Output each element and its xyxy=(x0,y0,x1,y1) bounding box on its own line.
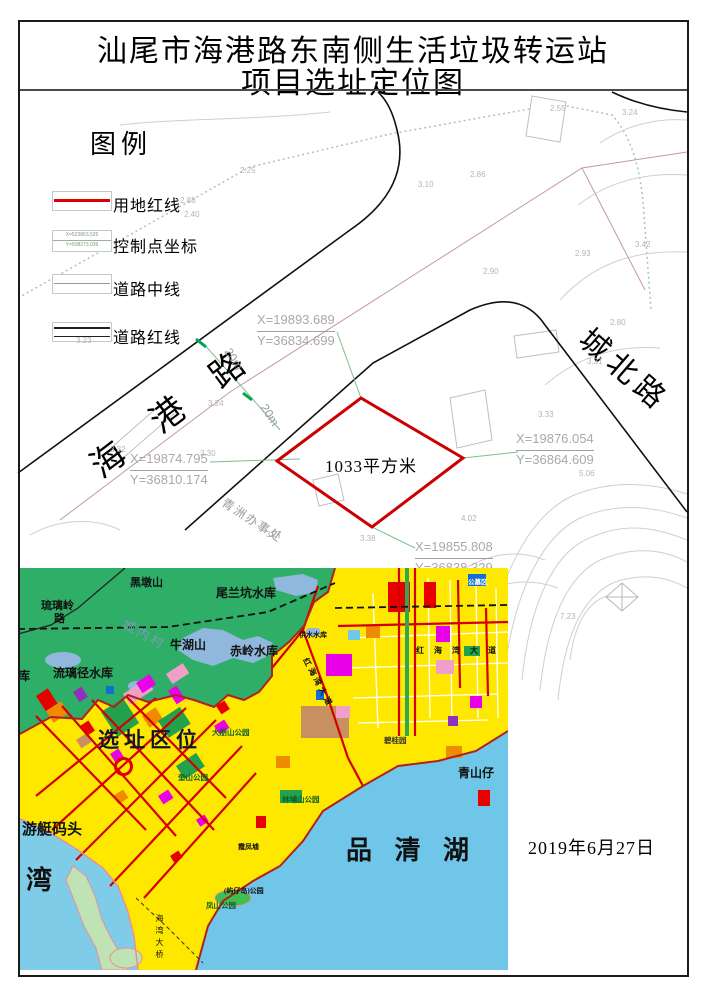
sheet-frame xyxy=(18,20,689,977)
site-selection-map-page: 汕尾市海港路东南侧生活垃圾转运站 项目选址定位图 图例 用地红线 X=52386… xyxy=(0,0,706,987)
